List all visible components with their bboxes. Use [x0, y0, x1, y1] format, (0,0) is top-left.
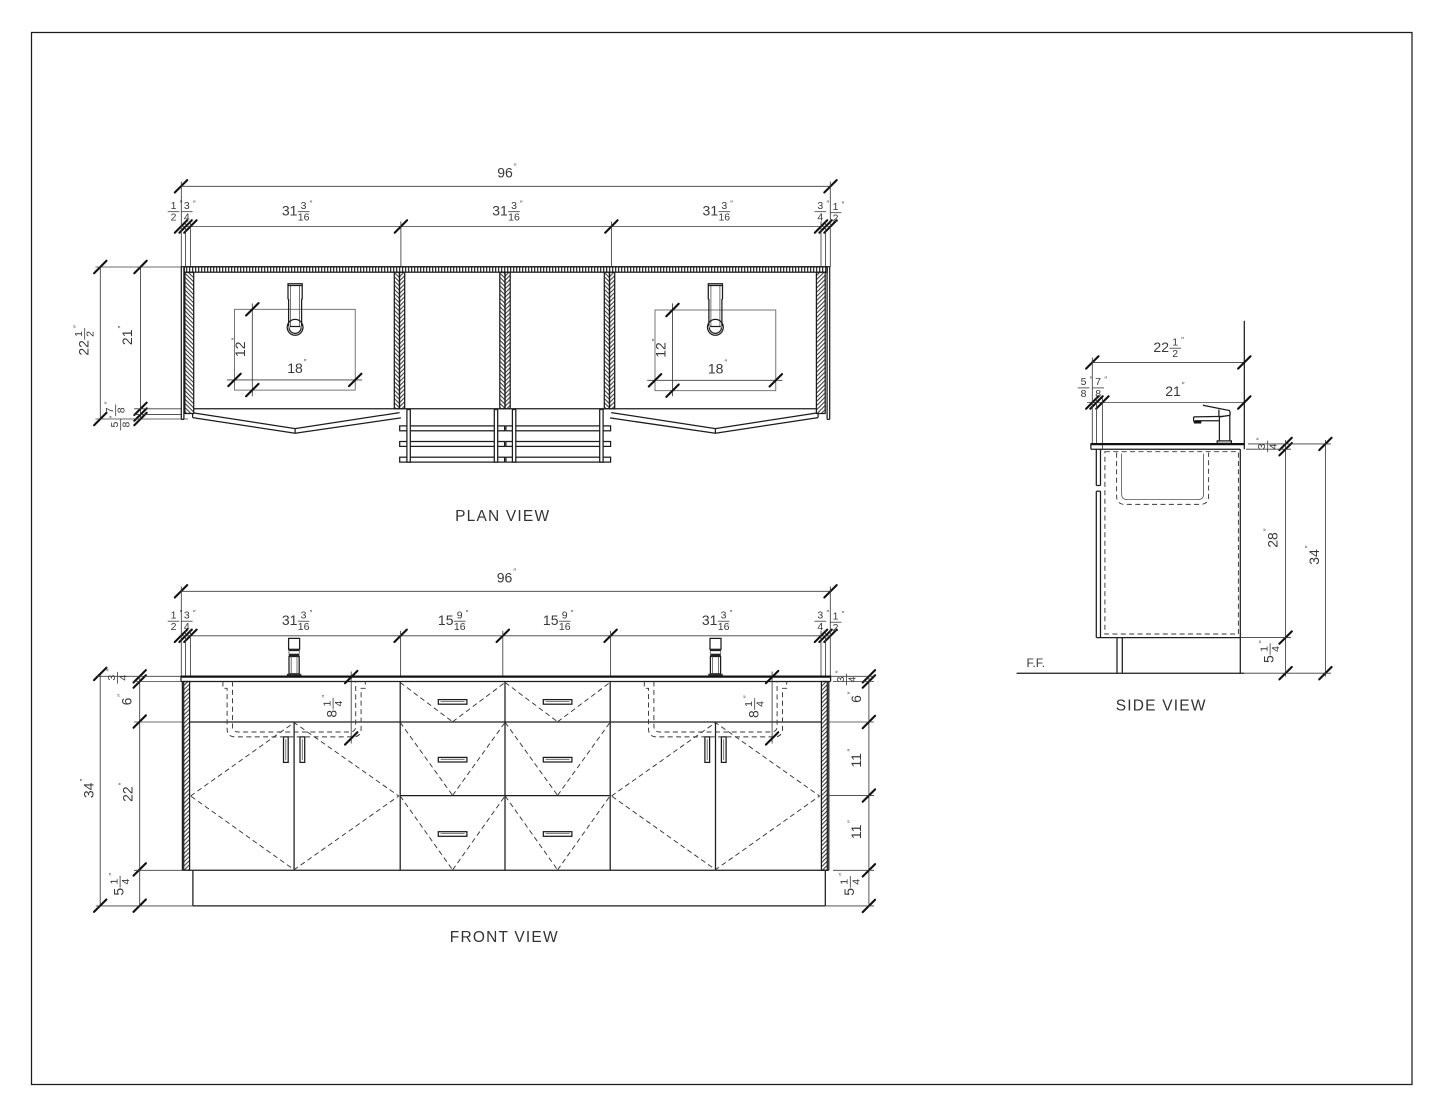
svg-text:″: ″ [743, 695, 752, 698]
svg-text:1: 1 [73, 331, 85, 337]
svg-text:″: ″ [514, 163, 517, 172]
svg-text:2: 2 [85, 331, 97, 337]
svg-text:2: 2 [171, 621, 177, 633]
svg-text:2: 2 [171, 212, 177, 224]
svg-text:8: 8 [121, 422, 133, 428]
svg-text:15: 15 [438, 612, 454, 628]
svg-text:″: ″ [109, 416, 118, 419]
svg-text:″: ″ [1304, 545, 1313, 548]
svg-text:3: 3 [721, 609, 727, 621]
svg-text:4: 4 [118, 675, 130, 681]
svg-text:″: ″ [846, 691, 855, 694]
svg-text:″: ″ [513, 568, 516, 577]
svg-text:7: 7 [1095, 376, 1101, 388]
svg-text:″: ″ [466, 609, 469, 618]
svg-text:″: ″ [834, 670, 843, 673]
svg-text:″: ″ [309, 200, 312, 209]
svg-text:5: 5 [1261, 655, 1277, 663]
svg-text:2: 2 [833, 213, 839, 225]
svg-text:22: 22 [120, 786, 136, 802]
svg-text:″: ″ [842, 610, 845, 619]
svg-text:″: ″ [520, 200, 523, 209]
svg-text:″: ″ [826, 200, 829, 209]
svg-text:″: ″ [846, 820, 855, 823]
svg-text:2: 2 [833, 622, 839, 634]
svg-text:1: 1 [321, 701, 333, 707]
svg-text:″: ″ [1104, 376, 1107, 385]
svg-text:″: ″ [1256, 437, 1265, 440]
svg-text:34: 34 [81, 782, 97, 798]
svg-text:12: 12 [232, 341, 248, 357]
svg-text:″: ″ [826, 609, 829, 618]
svg-text:16: 16 [298, 212, 310, 224]
svg-text:9: 9 [562, 609, 568, 621]
svg-text:22: 22 [1153, 339, 1169, 355]
svg-text:11: 11 [848, 824, 864, 839]
svg-text:5: 5 [841, 888, 857, 896]
svg-text:″: ″ [117, 694, 126, 697]
svg-text:1: 1 [171, 609, 177, 621]
svg-text:4: 4 [184, 621, 190, 633]
svg-text:″: ″ [842, 201, 845, 210]
svg-text:″: ″ [304, 358, 307, 367]
svg-text:8: 8 [324, 710, 340, 718]
svg-text:3: 3 [184, 609, 190, 621]
svg-text:″: ″ [118, 782, 127, 785]
svg-text:31: 31 [492, 202, 508, 218]
svg-text:4: 4 [120, 879, 132, 885]
svg-text:16: 16 [718, 621, 730, 633]
svg-text:″: ″ [79, 779, 88, 782]
svg-text:SIDE VIEW: SIDE VIEW [1116, 698, 1207, 715]
svg-text:″: ″ [1258, 640, 1267, 643]
svg-text:1: 1 [1258, 646, 1270, 652]
svg-text:8: 8 [745, 710, 761, 718]
svg-text:15: 15 [543, 612, 559, 628]
svg-text:3: 3 [184, 200, 190, 212]
svg-text:3: 3 [106, 675, 118, 681]
svg-text:31: 31 [282, 612, 298, 628]
svg-text:″: ″ [1181, 336, 1184, 345]
svg-text:″: ″ [73, 325, 82, 328]
svg-text:″: ″ [846, 749, 855, 752]
svg-text:″: ″ [104, 401, 113, 404]
svg-text:16: 16 [508, 212, 520, 224]
svg-text:″: ″ [571, 609, 574, 618]
svg-text:F.F.: F.F. [1026, 656, 1045, 670]
svg-text:3: 3 [301, 609, 307, 621]
svg-text:″: ″ [309, 609, 312, 618]
svg-text:1: 1 [833, 201, 839, 213]
svg-text:96: 96 [497, 569, 513, 585]
svg-text:4: 4 [755, 701, 767, 707]
svg-text:5: 5 [109, 422, 121, 428]
svg-text:8: 8 [116, 407, 128, 413]
svg-text:3: 3 [721, 200, 727, 212]
svg-text:3: 3 [817, 609, 823, 621]
svg-text:1: 1 [1172, 336, 1178, 348]
svg-text:16: 16 [298, 621, 310, 633]
svg-text:″: ″ [1182, 381, 1185, 390]
svg-text:″: ″ [321, 695, 330, 698]
svg-text:″: ″ [730, 200, 733, 209]
svg-text:18: 18 [708, 360, 724, 376]
svg-text:28: 28 [1264, 532, 1280, 548]
svg-text:1: 1 [833, 610, 839, 622]
svg-text:6: 6 [118, 697, 134, 705]
svg-text:1: 1 [839, 879, 851, 885]
svg-text:31: 31 [703, 202, 719, 218]
svg-text:PLAN VIEW: PLAN VIEW [455, 508, 550, 525]
svg-text:4: 4 [817, 212, 823, 224]
svg-text:22: 22 [75, 340, 91, 356]
svg-text:5: 5 [1081, 376, 1087, 388]
svg-text:1: 1 [743, 701, 755, 707]
svg-text:4: 4 [850, 879, 862, 885]
svg-text:3: 3 [511, 200, 517, 212]
svg-text:″: ″ [105, 669, 114, 672]
svg-text:1: 1 [108, 879, 120, 885]
svg-text:9: 9 [457, 609, 463, 621]
svg-text:″: ″ [117, 326, 126, 329]
svg-text:4: 4 [333, 701, 345, 707]
svg-text:″: ″ [193, 609, 196, 618]
svg-text:″: ″ [724, 359, 727, 368]
svg-text:″: ″ [1263, 528, 1272, 531]
svg-text:″: ″ [230, 338, 239, 341]
svg-text:18: 18 [287, 360, 303, 376]
svg-text:11: 11 [848, 753, 864, 768]
svg-text:96: 96 [497, 164, 513, 180]
svg-text:16: 16 [559, 621, 571, 633]
svg-text:FRONT VIEW: FRONT VIEW [450, 929, 559, 946]
svg-text:3: 3 [817, 200, 823, 212]
svg-text:7: 7 [104, 407, 116, 413]
svg-text:″: ″ [729, 609, 732, 618]
svg-text:12: 12 [653, 342, 669, 358]
svg-text:″: ″ [193, 200, 196, 209]
svg-text:1: 1 [171, 200, 177, 212]
svg-text:8: 8 [1081, 388, 1087, 400]
svg-text:31: 31 [702, 612, 718, 628]
svg-text:4: 4 [184, 212, 190, 224]
svg-text:4: 4 [1270, 646, 1282, 652]
svg-text:″: ″ [108, 873, 117, 876]
svg-text:21: 21 [119, 329, 135, 345]
svg-text:21: 21 [1165, 383, 1181, 399]
svg-text:″: ″ [838, 873, 847, 876]
svg-text:16: 16 [454, 621, 466, 633]
svg-text:5: 5 [111, 888, 127, 896]
svg-text:″: ″ [651, 338, 660, 341]
svg-text:31: 31 [282, 202, 298, 218]
svg-text:6: 6 [848, 695, 864, 703]
svg-text:16: 16 [718, 212, 730, 224]
svg-text:3: 3 [301, 200, 307, 212]
svg-text:4: 4 [817, 621, 823, 633]
svg-text:2: 2 [1172, 348, 1178, 360]
svg-text:34: 34 [1306, 549, 1322, 565]
